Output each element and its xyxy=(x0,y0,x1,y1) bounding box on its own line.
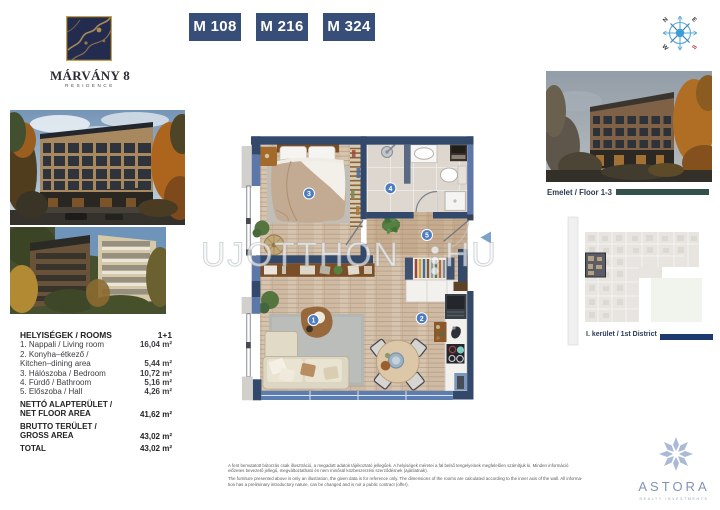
svg-text:N: N xyxy=(662,17,669,24)
svg-text:3: 3 xyxy=(307,191,311,198)
svg-text:4: 4 xyxy=(388,186,392,193)
svg-text:E: E xyxy=(690,17,697,24)
svg-text:S: S xyxy=(692,44,699,51)
svg-text:MÁRVÁNY UTCA: MÁRVÁNY UTCA xyxy=(564,273,565,306)
svg-text:1: 1 xyxy=(312,318,316,325)
svg-text:HU: HU xyxy=(445,236,498,274)
svg-text:2: 2 xyxy=(420,316,424,323)
svg-text:UJOTTHON: UJOTTHON xyxy=(201,236,400,274)
svg-text:W: W xyxy=(660,44,668,52)
